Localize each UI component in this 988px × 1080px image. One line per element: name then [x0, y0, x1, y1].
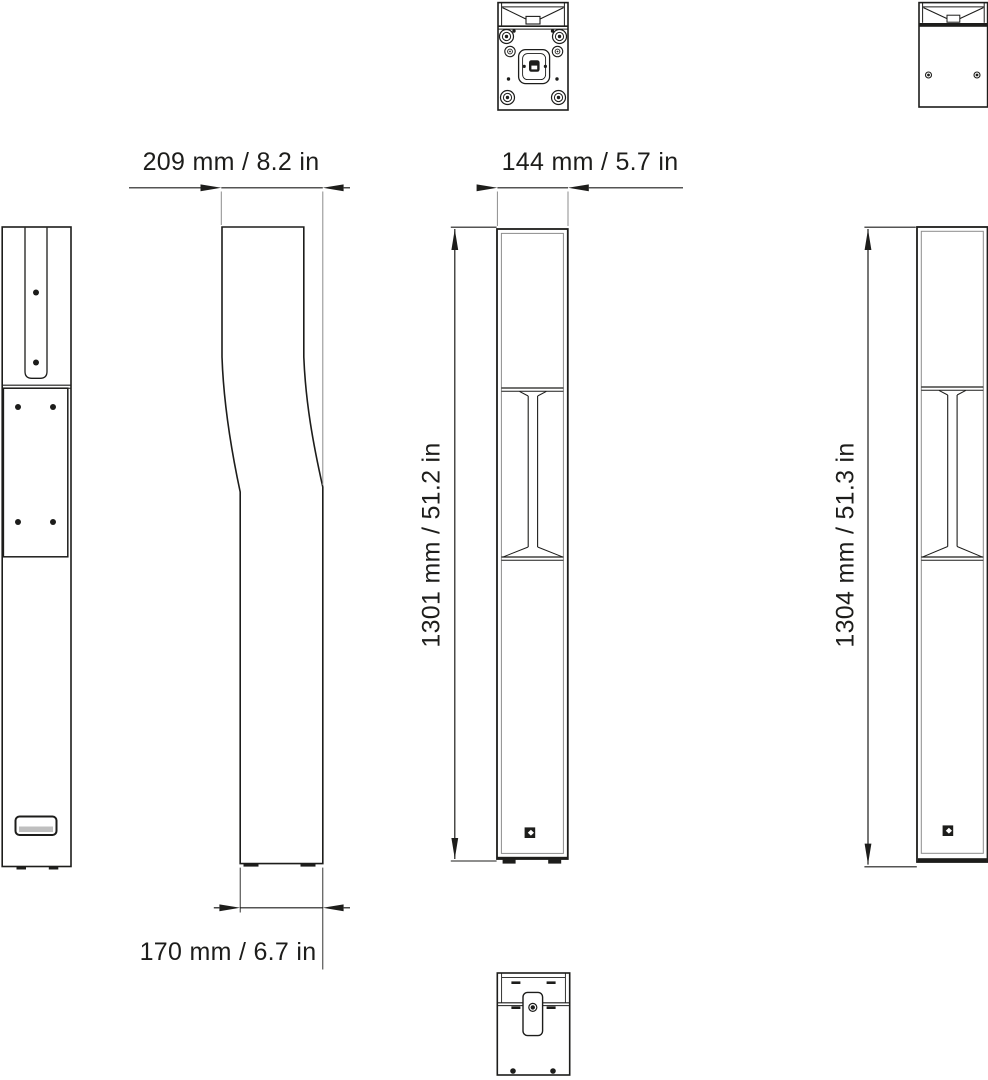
- top-right-view-outline: [919, 3, 988, 107]
- right-view-section-seam-top: [921, 387, 983, 390]
- dim-label-depth-bottom: 170 mm / 6.7 in: [140, 940, 317, 965]
- dim-width-front: [477, 184, 683, 226]
- front-view-waveguide: [504, 391, 563, 556]
- dim-arrow: [865, 844, 872, 865]
- right-view-brand-logo: [943, 825, 954, 836]
- dim-arrow: [219, 904, 240, 911]
- side-view-outline: [222, 227, 323, 864]
- front-view: [497, 229, 568, 864]
- top-view-mount-bracket: [519, 50, 550, 84]
- front-view-base-band: [497, 857, 567, 860]
- bottom-view-pole-mount: [523, 992, 543, 1035]
- front-view-section-seam-bottom: [501, 557, 563, 560]
- dim-arrow: [201, 184, 222, 191]
- right-view: [917, 227, 988, 862]
- technical-drawing-canvas: 209 mm / 8.2 in 144 mm / 5.7 in 1301 mm …: [0, 0, 988, 1080]
- top-view-horn: [498, 3, 568, 30]
- right-view-outline: [917, 227, 988, 862]
- right-view-waveguide: [923, 390, 982, 556]
- top-view: [498, 3, 568, 110]
- rear-view-panel-plate: [3, 388, 67, 557]
- dim-arrow: [323, 904, 344, 911]
- front-view-grille-frame: [501, 233, 563, 853]
- dim-label-depth-top: 209 mm / 8.2 in: [143, 150, 320, 175]
- dim-label-height-rear: 1304 mm / 51.3 in: [834, 442, 859, 647]
- dim-arrow: [451, 838, 458, 859]
- dim-height-rear: [864, 227, 916, 867]
- dim-arrow: [568, 184, 589, 191]
- rear-view-handle-slot: [16, 817, 57, 836]
- dim-arrow: [451, 229, 458, 250]
- dim-label-width-front: 144 mm / 5.7 in: [502, 150, 679, 175]
- rear-view-slot-screws: [33, 290, 39, 366]
- top-view-side-knobs: [505, 46, 563, 56]
- rear-view: [2, 227, 71, 870]
- dim-label-height-front: 1301 mm / 51.2 in: [420, 442, 445, 647]
- rear-view-plate-screws: [15, 404, 56, 525]
- dim-depth-top: [129, 184, 350, 485]
- front-view-outline: [497, 229, 568, 859]
- front-view-section-seam-top: [501, 388, 563, 391]
- front-view-feet: [503, 860, 562, 864]
- top-view-screw-dots: [507, 29, 559, 80]
- top-right-view: [919, 3, 988, 107]
- bottom-view: [497, 973, 569, 1075]
- dim-height-front: [451, 227, 497, 861]
- rear-view-outline: [2, 227, 71, 867]
- dim-arrow: [477, 184, 498, 191]
- right-view-section-seam-bottom: [921, 557, 983, 560]
- right-view-grille-frame: [921, 231, 983, 853]
- bottom-view-screws: [510, 1068, 556, 1074]
- top-right-view-horn: [919, 3, 988, 27]
- front-view-brand-logo: [525, 827, 536, 838]
- dim-arrow: [323, 184, 344, 191]
- dim-arrow: [865, 229, 872, 250]
- right-view-base-band: [918, 858, 987, 862]
- rear-view-top-slot: [25, 228, 47, 379]
- top-right-view-screws: [926, 72, 981, 78]
- side-view: [222, 227, 323, 867]
- rear-view-handle-shade: [19, 827, 53, 833]
